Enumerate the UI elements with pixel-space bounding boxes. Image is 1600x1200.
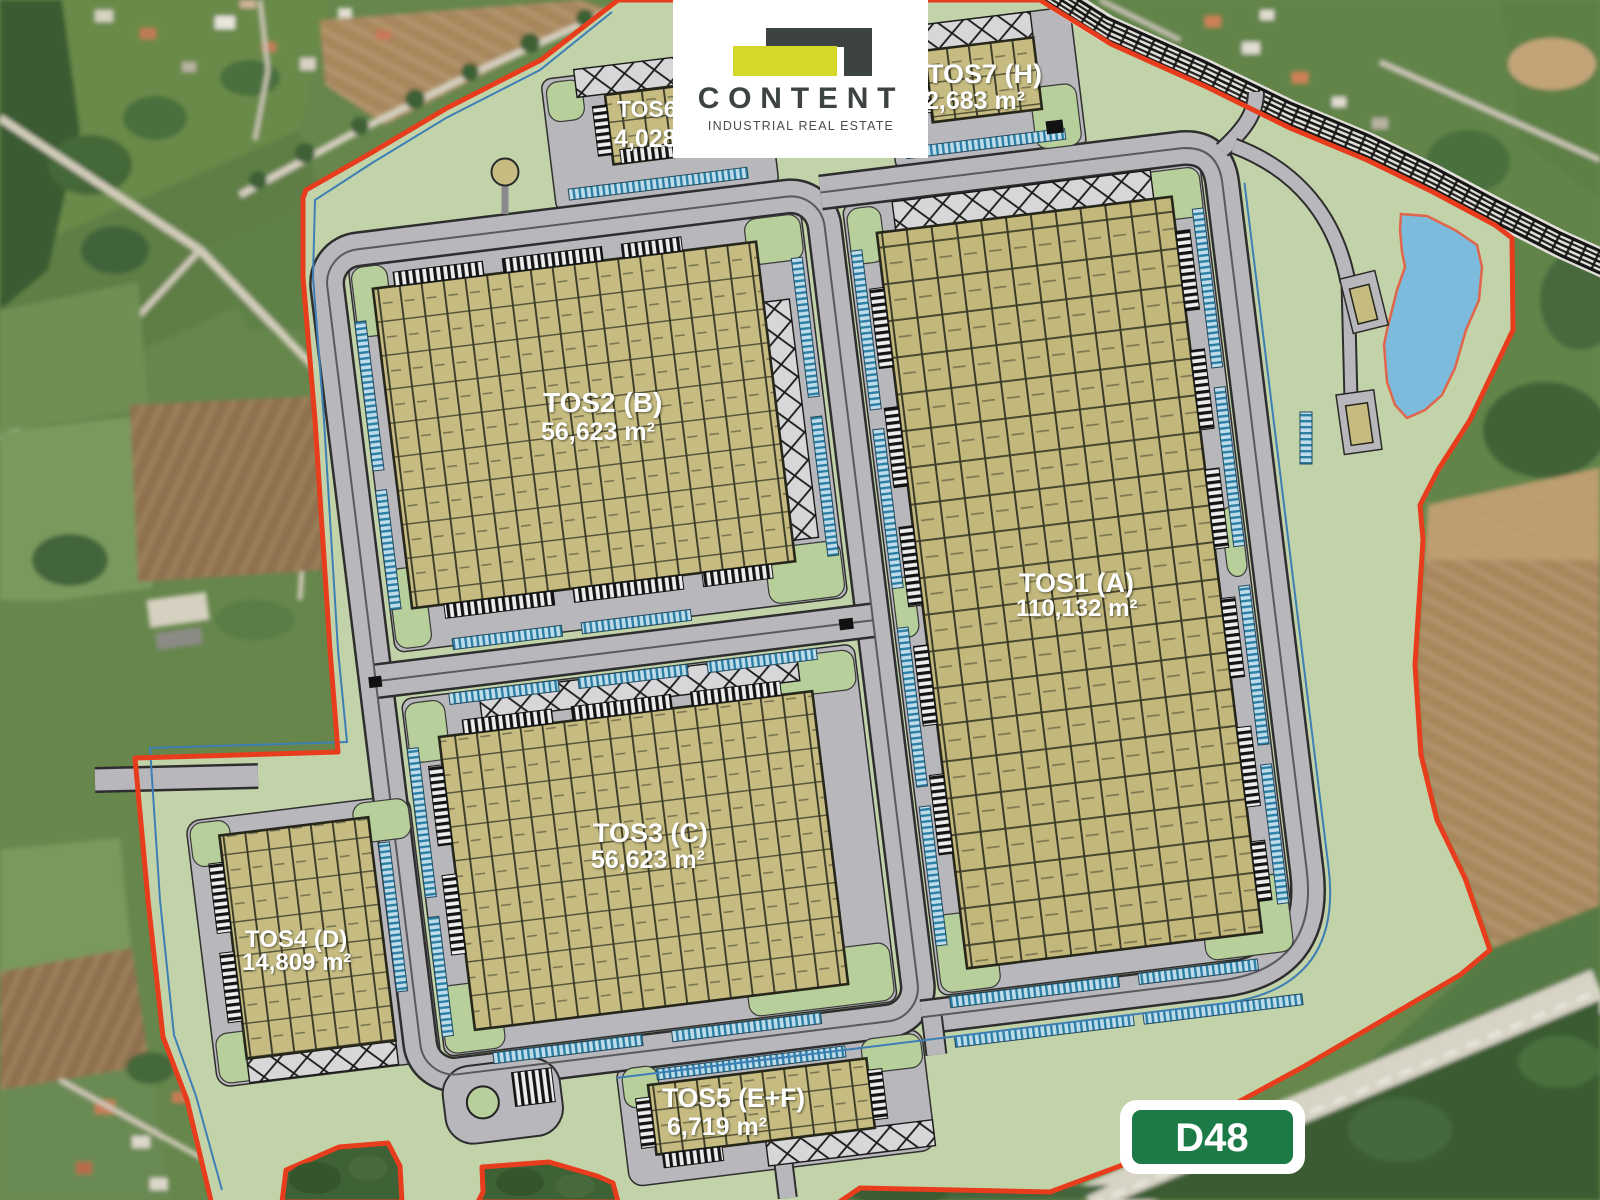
svg-text:TOS5 (E+F): TOS5 (E+F)	[662, 1083, 805, 1113]
svg-text:56,623 m²: 56,623 m²	[591, 846, 705, 874]
svg-text:TOS2 (B): TOS2 (B)	[543, 387, 662, 418]
svg-text:2,683 m²: 2,683 m²	[925, 87, 1025, 115]
svg-text:6,719 m²: 6,719 m²	[667, 1113, 767, 1141]
svg-text:TOS7 (H): TOS7 (H)	[927, 59, 1042, 89]
svg-text:CONTENT: CONTENT	[698, 82, 905, 115]
svg-text:56,623 m²: 56,623 m²	[541, 418, 655, 446]
svg-text:TOS3 (C): TOS3 (C)	[593, 818, 708, 848]
svg-text:TOS1 (A): TOS1 (A)	[1019, 568, 1134, 598]
svg-text:D48: D48	[1175, 1116, 1248, 1160]
svg-text:110,132 m²: 110,132 m²	[1016, 595, 1137, 622]
svg-text:14,809 m²: 14,809 m²	[242, 949, 351, 976]
svg-text:INDUSTRIAL REAL ESTATE: INDUSTRIAL REAL ESTATE	[708, 119, 894, 133]
